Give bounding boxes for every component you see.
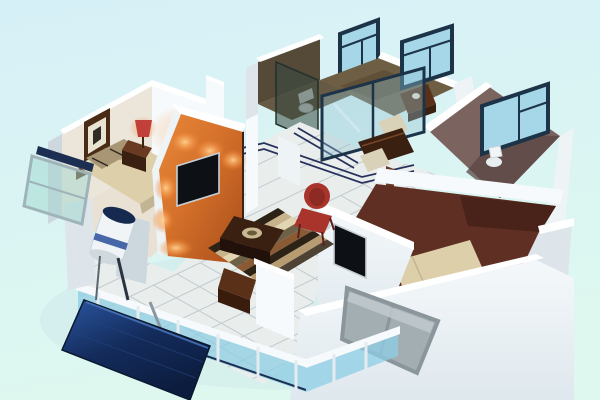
floorplan-render [0,0,600,400]
wall-spotlight [158,238,194,258]
wall-spotlight [152,207,174,233]
hall-wall [246,114,258,214]
wall-spotlight [154,174,178,202]
floorplan-svg [0,0,600,400]
